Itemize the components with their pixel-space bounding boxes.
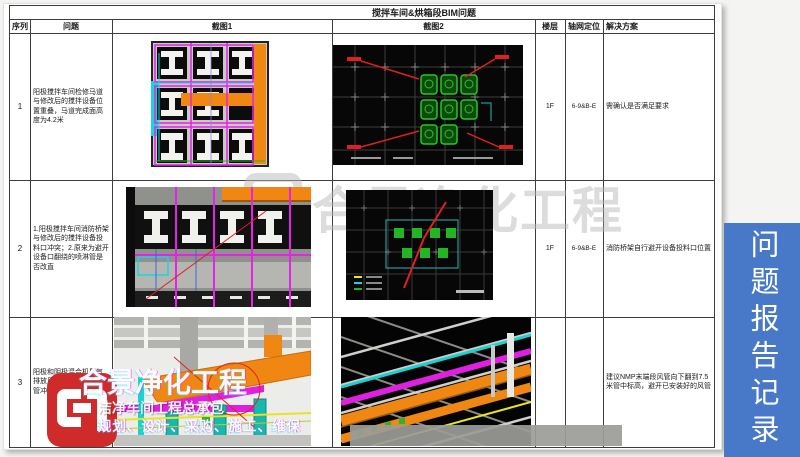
row2-seq: 2 — [10, 180, 30, 317]
row1-seq: 1 — [10, 33, 30, 180]
row2-solution-cell: 消防桥架自行避开设备投料口位置 — [603, 180, 714, 317]
header-floor: 楼层 — [535, 19, 565, 33]
row1-floor: 1F — [535, 33, 565, 180]
header-screenshot1: 截图1 — [112, 19, 332, 33]
row2-solution-text: 消防桥架自行避开设备投料口位置 — [603, 244, 714, 254]
row1-solution-cell: 需确认是否满足要求 — [603, 33, 714, 180]
table-title-text: 搅拌车间&烘箱段BIM问题 — [372, 6, 476, 19]
header-seq: 序列 — [10, 19, 30, 33]
row1-problem-text: 阳极搅拌车间检修马道与修改后的搅拌设备位置重叠，马道完成面高度为4.2米 — [30, 88, 112, 126]
row3-solution-text: 建议NMP末端段风管向下翻到7.5米管中标高，避开已安装好的风管 — [603, 373, 714, 392]
watermark-slogan: 规划、设计、采购、施工、维保 — [98, 415, 301, 435]
watermark-company-name: 合景净化工程 — [79, 361, 247, 401]
row2-screenshot1-cad-section — [126, 187, 311, 307]
report-screenshot: 合景净化工程 搅拌车间&烘箱段BIM问题 序列 问题 截图1 截图2 楼层 轴网… — [0, 0, 800, 457]
document-page: 合景净化工程 搅拌车间&烘箱段BIM问题 序列 问题 截图1 截图2 楼层 轴网… — [3, 3, 722, 450]
watermark-gray-bar — [350, 425, 622, 446]
sidebar-tab-problem-report[interactable]: 问题报告记录 — [724, 223, 800, 457]
table-title: 搅拌车间&烘箱段BIM问题 — [10, 6, 714, 19]
row2-problem-text: 1.阳极搅拌车间消防桥架与修改后的搅拌设备投料口冲突；2.原来为避开设备口翻绕的… — [30, 225, 112, 273]
header-axis: 轴网定位 — [565, 19, 603, 33]
header-problem: 问题 — [30, 19, 112, 33]
row2-floor: 1F — [535, 180, 565, 317]
row2-problem-cell: 1.阳极搅拌车间消防桥架与修改后的搅拌设备投料口冲突；2.原来为避开设备口翻绕的… — [30, 180, 112, 317]
row1-screenshot1-cad-plan — [151, 41, 269, 167]
row1-screenshot2-cad-plan — [333, 45, 523, 165]
row1-problem-cell: 阳极搅拌车间检修马道与修改后的搅拌设备位置重叠，马道完成面高度为4.2米 — [30, 33, 112, 180]
header-solution: 解决方案 — [603, 19, 717, 33]
row2-axis: 6-9&B-E — [565, 180, 603, 317]
row3-seq: 3 — [10, 317, 30, 447]
sidebar-tab-label: 问题报告记录 — [741, 229, 783, 451]
row2-screenshot2-cad-plan — [346, 190, 493, 300]
row1-solution-text: 需确认是否满足要求 — [603, 102, 672, 112]
row1-axis: 6-9&B-E — [565, 33, 603, 180]
header-screenshot2: 截图2 — [332, 19, 535, 33]
